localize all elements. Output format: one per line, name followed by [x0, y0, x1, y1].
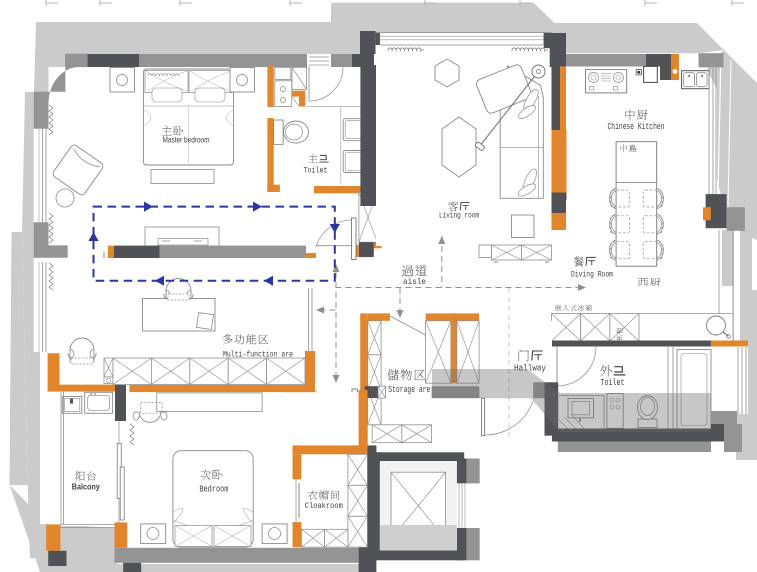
svg-text:Master bedroom: Master bedroom [163, 136, 210, 145]
svg-text:Chinese Kitchen: Chinese Kitchen [608, 122, 665, 132]
svg-text:aisle: aisle [403, 277, 426, 287]
svg-text:Diving Room: Diving Room [571, 270, 613, 280]
svg-text:Bedroom: Bedroom [199, 485, 228, 495]
svg-text:Balcony: Balcony [72, 483, 100, 492]
svg-text:Toilet: Toilet [601, 378, 625, 388]
svg-text:Storage are: Storage are [388, 385, 430, 395]
svg-text:Living room: Living room [439, 212, 479, 221]
svg-text:Toilet: Toilet [304, 166, 328, 176]
svg-text:Cloakroom: Cloakroom [305, 501, 343, 511]
